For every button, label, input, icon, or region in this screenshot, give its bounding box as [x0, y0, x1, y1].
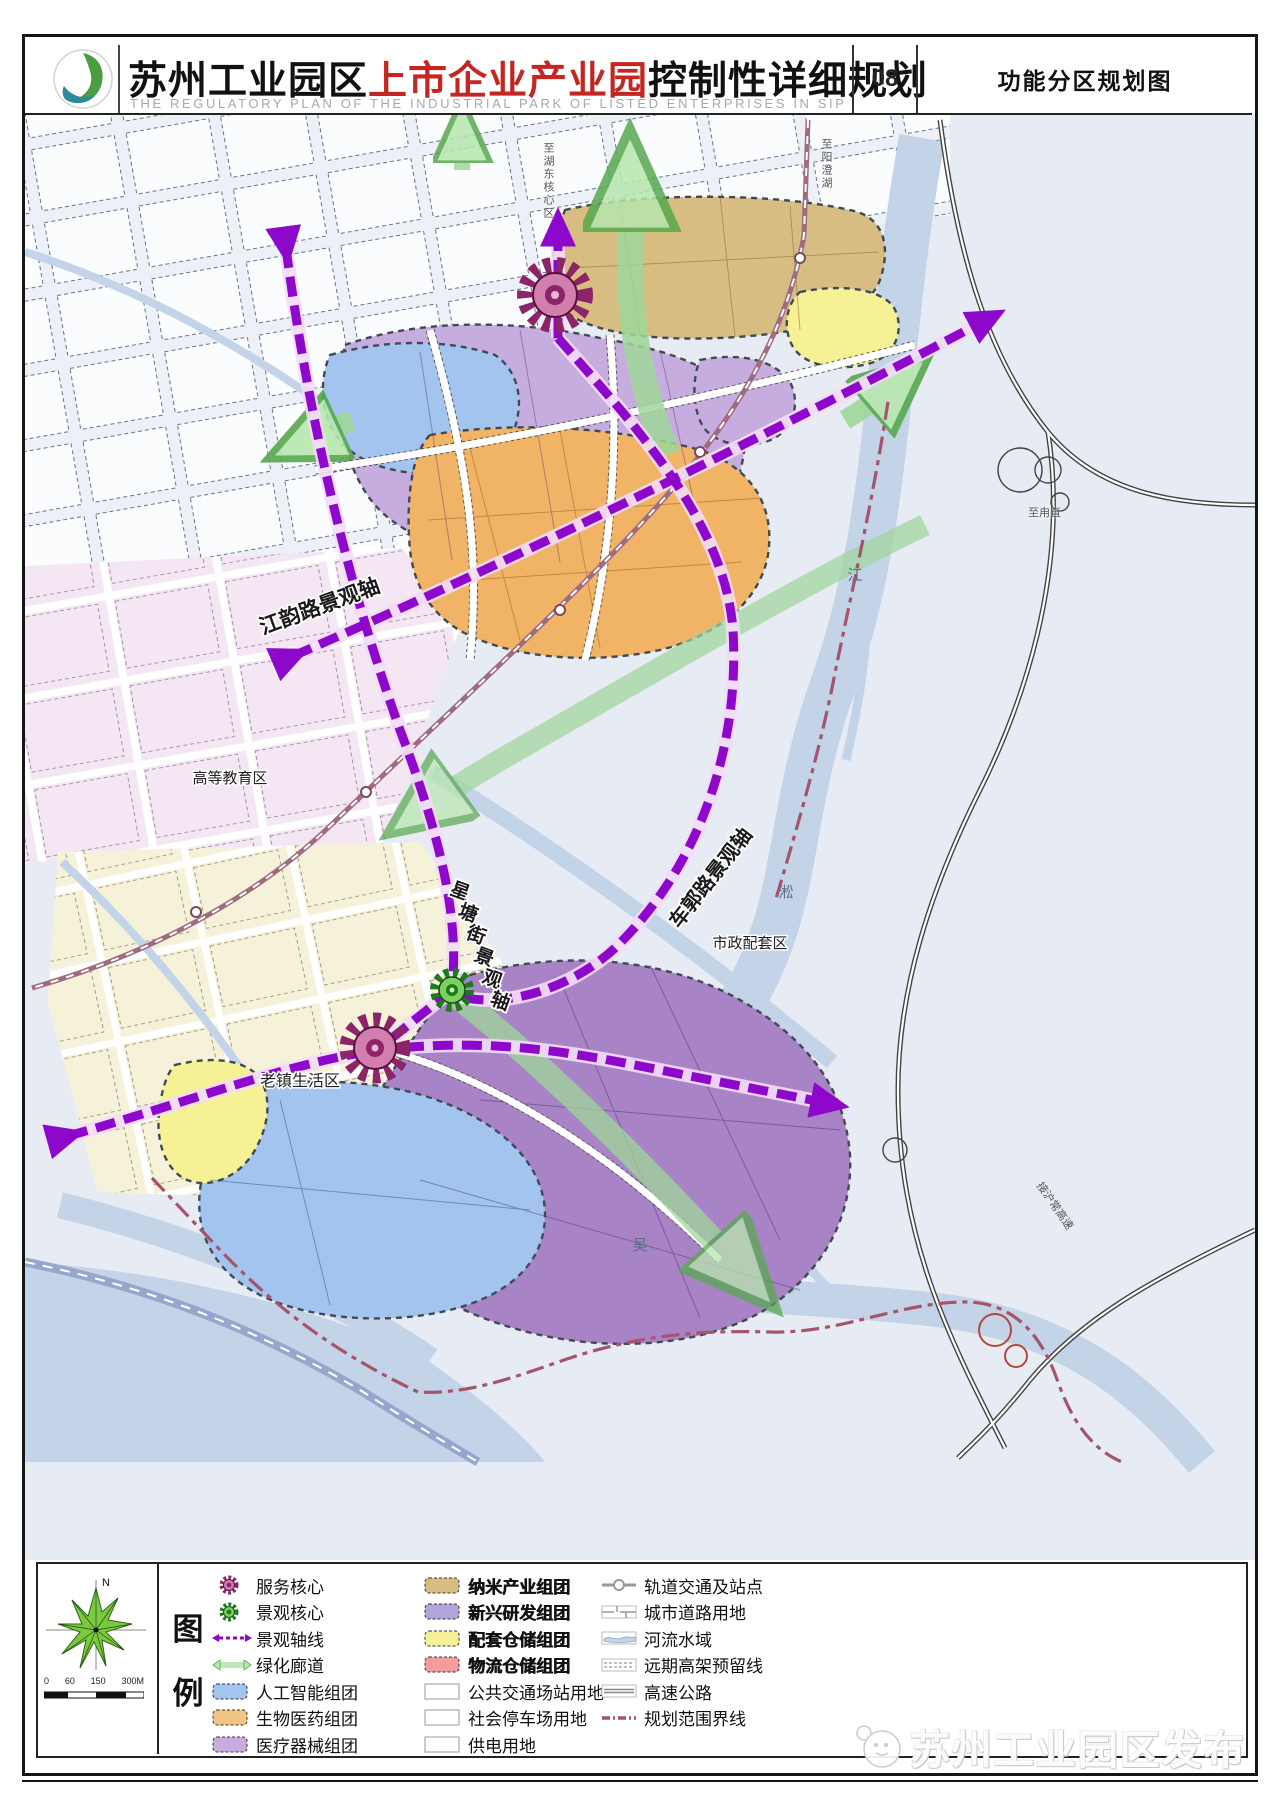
legend-item: 物流仓储组团: [424, 1652, 604, 1679]
swatch-support-storage: [424, 1630, 468, 1647]
svg-text:吴: 吴: [632, 1237, 647, 1254]
swatch-parking-land: [424, 1709, 468, 1726]
swatch-nano: [424, 1577, 468, 1594]
watermark: 苏州工业园区发布: [852, 1718, 1246, 1776]
page-subtitle: THE REGULATORY PLAN OF THE INDUSTRIAL PA…: [130, 96, 847, 111]
river-water-icon: [600, 1630, 644, 1646]
legend-item: 配套仓储组团: [424, 1625, 604, 1652]
elevated-reserve-icon: [600, 1657, 644, 1673]
north-label: N: [102, 1577, 110, 1589]
boundary-icon: [600, 1710, 644, 1726]
legend-item: 景观核心: [212, 1599, 358, 1626]
legend-item: 供电用地: [424, 1731, 604, 1758]
header-divider-logo: [118, 45, 120, 113]
highway-icon: [600, 1683, 644, 1699]
legend-item: 景观轴线: [212, 1625, 358, 1652]
header-rule: [25, 113, 1252, 115]
edge-label-hudong: 至湖东核心区: [540, 142, 556, 220]
legend-col2: 纳米产业组团 新兴研发组团 配套仓储组团 物流仓储组团 公共交通场站用地 社会停…: [424, 1572, 604, 1758]
sheet-title: 功能分区规划图: [918, 45, 1252, 113]
legend-item: 生物医药组团: [212, 1705, 358, 1732]
landscape-core-icon: [212, 1600, 256, 1624]
service-core-icon: [212, 1573, 256, 1597]
scale-bar: [44, 1690, 144, 1700]
legend-item: 绿化廊道: [212, 1652, 358, 1679]
legend-item: 河流水域: [600, 1625, 763, 1652]
legend-item: 轨道交通及站点: [600, 1572, 763, 1599]
label-higher-education: 高等教育区: [192, 769, 267, 787]
urban-road-icon: [600, 1604, 644, 1620]
legend-item: 规划范围界线: [600, 1705, 763, 1732]
legend-item: 高速公路: [600, 1678, 763, 1705]
planning-map: 江韵路景观轴 星 塘 街 景 观 轴 车郭路景观轴 高等教育区 老镇生活区 市政…: [25, 115, 1255, 1560]
swatch-ai: [212, 1683, 256, 1700]
landscape-core: [435, 973, 469, 1007]
label-municipal-support: 市政配套区: [712, 935, 787, 952]
legend-item: 人工智能组团: [212, 1678, 358, 1705]
legend-title-char2: 例: [170, 1676, 206, 1712]
watermark-text: 苏州工业园区发布: [910, 1718, 1246, 1776]
swatch-power-land: [424, 1736, 468, 1753]
compass-rose: N: [44, 1574, 148, 1672]
rail-transit-icon: [600, 1577, 644, 1593]
swatch-medical-device: [212, 1736, 256, 1753]
legend-item: 城市道路用地: [600, 1599, 763, 1626]
svg-text:淞: 淞: [778, 884, 793, 901]
legend-item: 医疗器械组团: [212, 1731, 358, 1758]
scalebar-labels: 0 60 150 300M: [44, 1676, 144, 1686]
legend-item: 公共交通场站用地: [424, 1678, 604, 1705]
edge-label-yangcheng: 至阳澄湖: [818, 138, 834, 190]
legend-item: 社会停车场用地: [424, 1705, 604, 1732]
swatch-logistics: [424, 1656, 468, 1673]
legend-col3: 轨道交通及站点 城市道路用地 河流水域 远期高架预留线 高速公路 规划范围界线: [600, 1572, 763, 1731]
green-corridor-icon: [212, 1658, 256, 1672]
sheet-number: 08: [852, 45, 918, 113]
mascot-icon: [852, 1721, 904, 1773]
legend-item: 远期高架预留线: [600, 1652, 763, 1679]
legend-item: 服务核心: [212, 1572, 358, 1599]
label-old-town: 老镇生活区: [260, 1072, 340, 1090]
legend-divider: [157, 1562, 159, 1754]
plan-sheet: 江韵路景观轴 星 塘 街 景 观 轴 车郭路景观轴 高等教育区 老镇生活区 市政…: [0, 0, 1280, 1810]
legend-item: 新兴研发组团: [424, 1599, 604, 1626]
sheet-frame-inner-line: [22, 1780, 1258, 1782]
swatch-transit-station-land: [424, 1683, 468, 1700]
legend-col1: 服务核心 景观核心 景观轴线 绿化廊道 人工智能组团 生物医药组团 医疗器械组团: [212, 1572, 358, 1758]
edge-label-luzhi: 至甪直: [1028, 505, 1061, 519]
landscape-axis-icon: [212, 1631, 256, 1645]
swatch-rd: [424, 1603, 468, 1620]
svg-text:江: 江: [847, 567, 862, 584]
sip-logo: [52, 48, 114, 110]
legend-item: 纳米产业组团: [424, 1572, 604, 1599]
swatch-biomed: [212, 1709, 256, 1726]
legend-title-char1: 图: [170, 1612, 206, 1648]
